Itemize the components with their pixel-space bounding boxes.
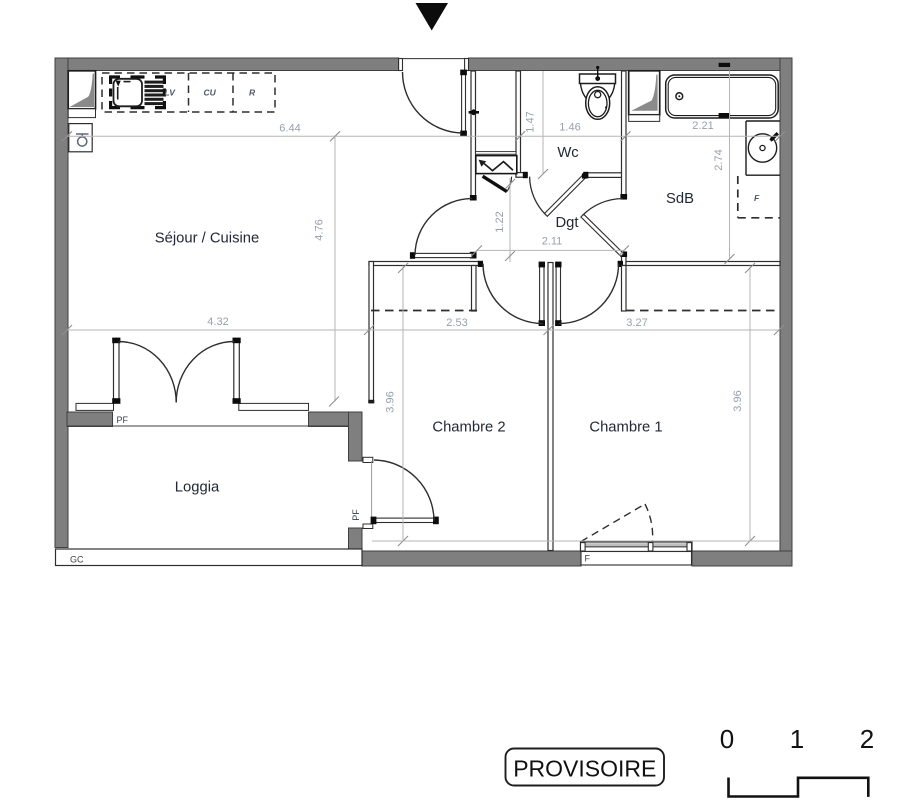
svg-text:SdB: SdB <box>666 191 694 207</box>
svg-text:R: R <box>249 88 256 98</box>
svg-text:Loggia: Loggia <box>175 480 220 496</box>
svg-text:F: F <box>754 193 760 203</box>
svg-text:Chambre 1: Chambre 1 <box>589 420 662 436</box>
svg-text:1: 1 <box>790 724 804 754</box>
svg-text:2.74: 2.74 <box>713 149 725 170</box>
svg-text:2: 2 <box>860 724 874 754</box>
svg-text:1.22: 1.22 <box>494 211 506 232</box>
svg-text:F: F <box>585 554 591 564</box>
svg-text:4.76: 4.76 <box>314 219 326 240</box>
svg-text:CU: CU <box>204 88 217 98</box>
svg-text:PROVISOIRE: PROVISOIRE <box>513 756 656 782</box>
svg-text:3.27: 3.27 <box>626 317 647 329</box>
svg-text:4.32: 4.32 <box>207 316 228 328</box>
svg-text:2.53: 2.53 <box>446 317 467 329</box>
svg-text:3.96: 3.96 <box>732 390 744 411</box>
svg-text:0: 0 <box>720 724 734 754</box>
svg-text:6.44: 6.44 <box>279 123 300 135</box>
svg-text:1.47: 1.47 <box>525 111 537 132</box>
svg-text:Chambre 2: Chambre 2 <box>432 420 505 436</box>
svg-text:Séjour / Cuisine: Séjour / Cuisine <box>155 231 259 247</box>
svg-text:Wc: Wc <box>557 145 579 161</box>
svg-text:1.46: 1.46 <box>559 122 580 134</box>
svg-text:Dgt: Dgt <box>555 215 578 231</box>
svg-text:LV: LV <box>165 88 177 98</box>
svg-text:PF: PF <box>351 509 361 521</box>
svg-text:2.11: 2.11 <box>542 236 563 248</box>
svg-text:3.96: 3.96 <box>385 391 397 412</box>
svg-text:2.21: 2.21 <box>692 120 713 132</box>
svg-text:PF: PF <box>117 415 129 425</box>
svg-text:GC: GC <box>70 555 84 565</box>
